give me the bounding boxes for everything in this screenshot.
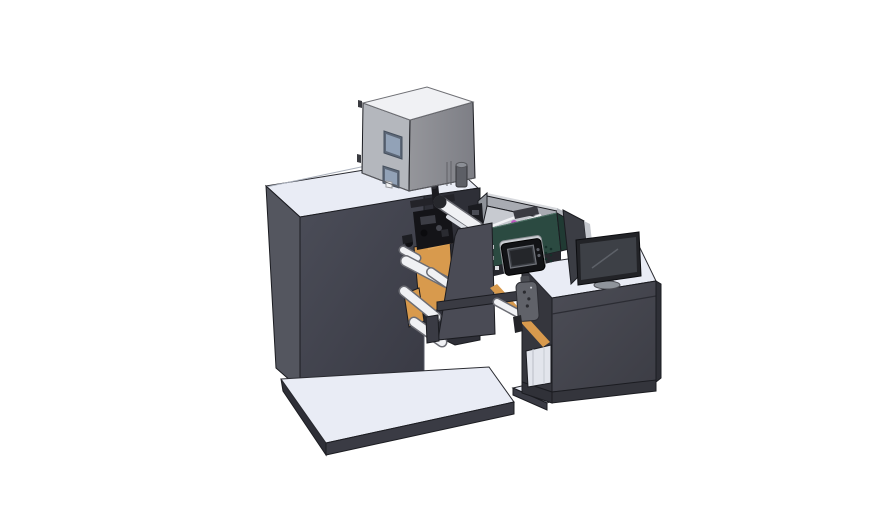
module-control-panel <box>499 235 546 276</box>
machine-left-face <box>266 186 300 389</box>
roller-end-cap <box>434 196 447 209</box>
roller-under-rail <box>497 302 519 314</box>
bracket-detail <box>472 210 479 215</box>
mech-clamp <box>441 229 449 237</box>
desk-right-face <box>656 281 661 382</box>
cabinet-hinge <box>358 100 362 108</box>
machine-assembly-render <box>0 0 888 522</box>
machine-base-platform <box>281 367 514 455</box>
cad-render-canvas <box>0 0 888 522</box>
exhaust-cylinder <box>456 162 467 187</box>
cylinder-cap <box>456 162 467 167</box>
module-key <box>495 266 499 270</box>
desk-shelf <box>526 345 551 387</box>
cabinet-hinge <box>357 154 361 163</box>
mech-roller-end <box>421 230 428 237</box>
shelf-opening <box>526 345 551 387</box>
desk-front-face <box>552 281 656 392</box>
frame-plate-foot <box>426 315 439 343</box>
